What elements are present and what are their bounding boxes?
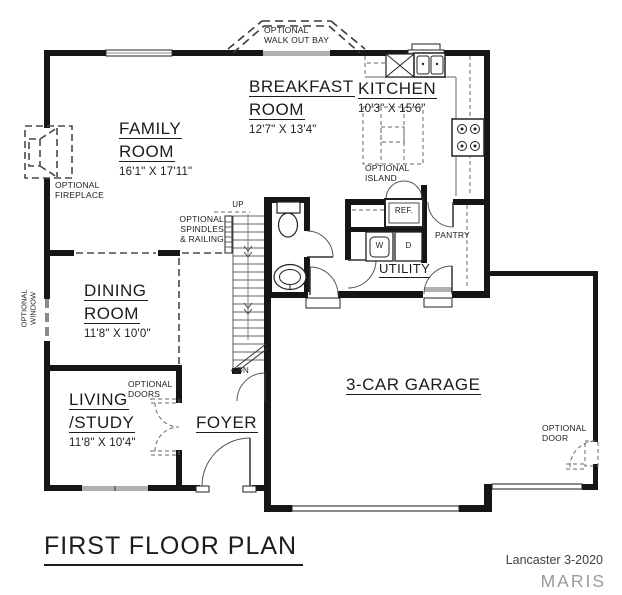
plan-credit: Lancaster 3-2020 [440,553,603,567]
kitchen-sink [414,53,445,77]
maris-watermark: MARIS [440,571,606,592]
foyer-label: FOYER [196,414,258,437]
ref-label: REF. [385,206,423,215]
dishwasher [386,54,414,77]
kitchen-window-bump [412,44,440,50]
basement-door [237,373,265,401]
service-step [424,298,452,307]
optional-island-dashed [363,107,423,164]
powder-room-door [307,231,333,257]
breakfast-room-label: BREAKFAST ROOM 12'7" X 13'4" [249,78,355,137]
dining-room-label: DINING ROOM 11'8" X 10'0" [84,282,151,341]
bathroom-fixtures [274,202,306,290]
living-study-label: LIVING /STUDY 11'8" X 10'4" [69,391,136,450]
bay-window [263,51,330,56]
garage-label: 3-CAR GARAGE [346,376,481,399]
stairs-up-label: UP [228,200,248,209]
page-title: FIRST FLOOR PLAN [44,532,303,566]
optional-door-label: OPTIONAL DOOR [542,423,587,443]
stairs-down-label: DN [234,366,252,375]
family-room-dims: 16'1" X 17'11" [119,167,192,179]
double-garage-door [292,506,459,511]
optional-doors-label: OPTIONAL DOORS [128,379,173,399]
optional-window-label: OPTIONAL WINDOW [20,285,39,331]
garage-doors [292,484,582,511]
utility-label: UTILITY [379,261,430,278]
optional-island-label: OPTIONAL ISLAND [365,163,410,183]
front-door [196,438,256,492]
refrigerator [385,181,423,227]
optional-french-doors-dashed [151,399,179,455]
living-study-dims: 11'8" X 10'4" [69,438,136,450]
utility-door [348,260,376,288]
dryer-label: D [395,241,422,250]
pantry-label: PANTRY [435,230,470,240]
kitchen-label: KITCHEN 10'3" X 15'6" [358,80,437,116]
washer-label: W [366,241,393,250]
pantry-door [428,202,453,227]
breakfast-room-dims: 12'7" X 13'4" [249,125,355,137]
toilet [277,202,300,237]
floor-plan-page: FAMILY ROOM 16'1" X 17'11" BREAKFAST ROO… [0,0,622,595]
optional-spindles-label: OPTIONAL SPINDLES & RAILING [166,214,224,244]
optional-fireplace-label: OPTIONAL FIREPLACE [55,180,104,200]
dining-room-dims: 11'8" X 10'0" [84,329,151,341]
optional-walkout-bay-label: OPTIONAL WALK OUT BAY [264,25,329,45]
garage-entry-door [306,267,340,308]
pedestal-sink [274,265,306,291]
kitchen-dims: 10'3" X 15'6" [358,104,437,116]
fireplace-dashed [25,126,72,178]
garage-step [306,298,340,308]
stair-railing [225,216,232,253]
single-garage-door [492,484,582,489]
range-stove [452,119,484,156]
family-room-label: FAMILY ROOM 16'1" X 17'11" [119,120,192,179]
